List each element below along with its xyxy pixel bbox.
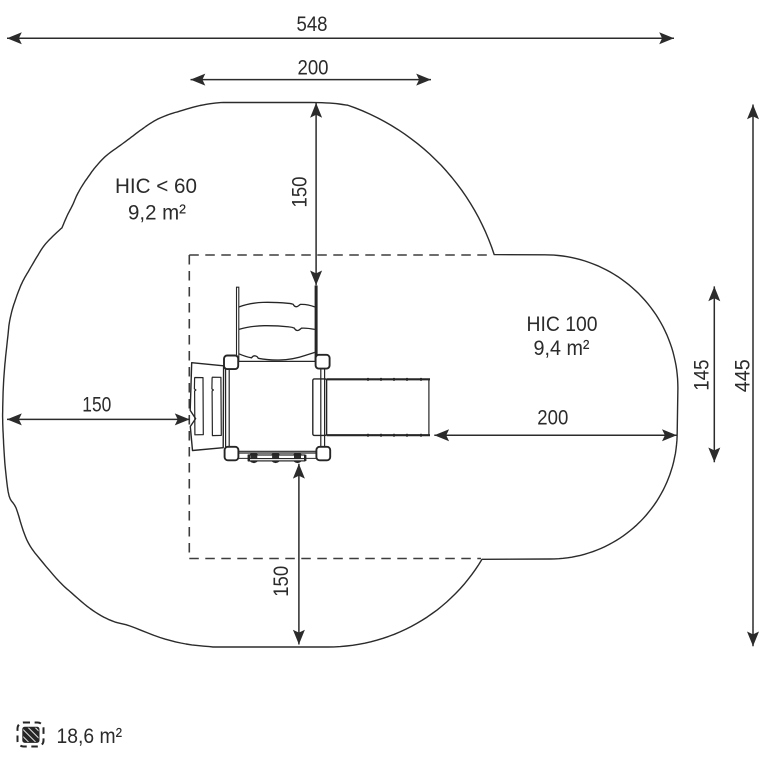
svg-text:145: 145 <box>689 360 713 391</box>
svg-text:150: 150 <box>288 176 312 207</box>
svg-text:18,6 m²: 18,6 m² <box>57 724 123 748</box>
svg-text:445: 445 <box>730 359 754 392</box>
svg-text:548: 548 <box>297 12 328 36</box>
svg-text:150: 150 <box>269 566 293 597</box>
svg-text:9,4 m²: 9,4 m² <box>534 336 590 360</box>
svg-text:9,2 m²: 9,2 m² <box>128 201 186 225</box>
svg-text:HIC 100: HIC 100 <box>527 312 598 336</box>
svg-text:150: 150 <box>82 393 111 417</box>
svg-text:200: 200 <box>537 406 568 430</box>
svg-text:HIC < 60: HIC < 60 <box>115 174 197 198</box>
svg-text:200: 200 <box>298 56 329 80</box>
